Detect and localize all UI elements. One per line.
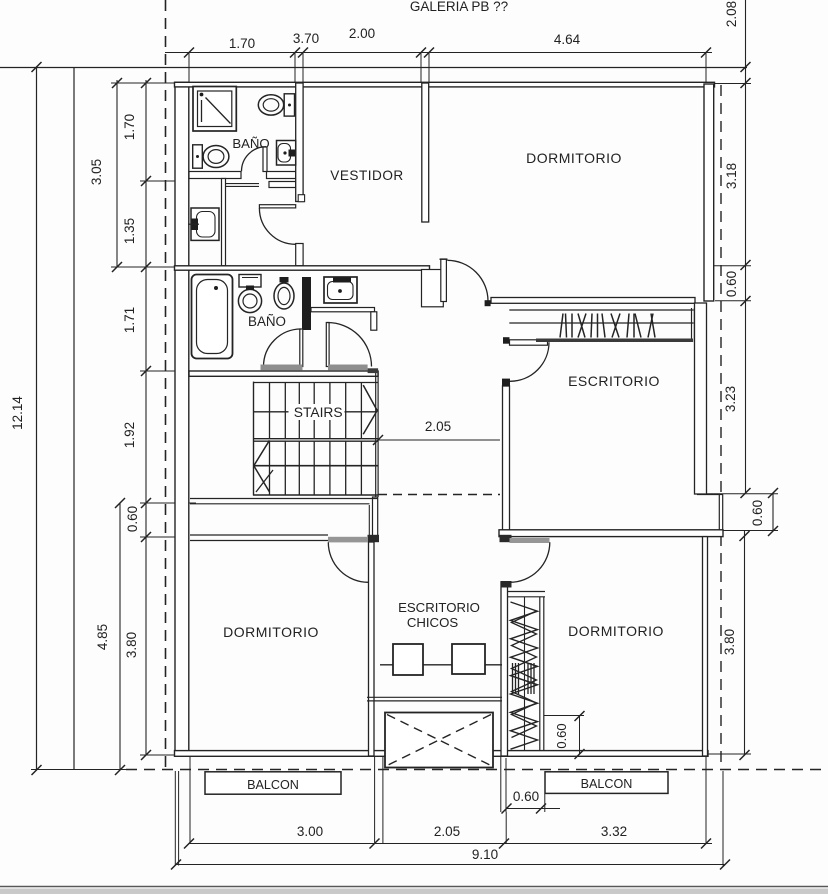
svg-text:ESCRITORIO: ESCRITORIO (568, 373, 660, 389)
svg-text:2.00: 2.00 (349, 26, 375, 41)
svg-text:2.05: 2.05 (425, 419, 451, 434)
svg-text:1.92: 1.92 (122, 422, 137, 448)
svg-text:0.60: 0.60 (513, 789, 539, 804)
svg-text:STAIRS: STAIRS (294, 405, 343, 420)
svg-text:3.70: 3.70 (293, 31, 319, 46)
svg-text:1.35: 1.35 (122, 218, 137, 244)
svg-text:0.60: 0.60 (724, 271, 739, 297)
svg-text:1.70: 1.70 (229, 36, 255, 51)
svg-text:3.32: 3.32 (601, 824, 627, 839)
svg-text:9.10: 9.10 (472, 847, 498, 862)
svg-text:VESTIDOR: VESTIDOR (330, 168, 404, 183)
svg-text:1.70: 1.70 (122, 114, 137, 140)
svg-text:BAÑO: BAÑO (248, 314, 286, 329)
svg-text:BALCON: BALCON (247, 778, 299, 792)
svg-text:GALERIA PB ??: GALERIA PB ?? (410, 0, 508, 14)
svg-text:ESCRITORIO: ESCRITORIO (398, 600, 480, 615)
svg-text:0.60: 0.60 (554, 723, 569, 748)
svg-text:4.85: 4.85 (95, 624, 110, 650)
svg-text:4.64: 4.64 (554, 32, 581, 47)
svg-text:2.08: 2.08 (724, 1, 739, 27)
svg-text:3.80: 3.80 (124, 632, 139, 658)
svg-text:3.00: 3.00 (297, 824, 323, 839)
svg-text:3.18: 3.18 (724, 163, 739, 189)
svg-text:12.14: 12.14 (10, 396, 25, 430)
svg-text:3.05: 3.05 (89, 159, 104, 185)
svg-text:CHICOS: CHICOS (407, 615, 458, 630)
svg-text:3.80: 3.80 (722, 629, 737, 655)
svg-text:0.60: 0.60 (125, 506, 140, 532)
svg-text:3.23: 3.23 (723, 386, 738, 412)
svg-text:1.71: 1.71 (122, 307, 137, 333)
svg-text:DORMITORIO: DORMITORIO (568, 623, 664, 639)
svg-text:0.60: 0.60 (750, 500, 765, 526)
svg-text:DORMITORIO: DORMITORIO (526, 150, 622, 166)
svg-text:2.05: 2.05 (434, 824, 460, 839)
svg-text:DORMITORIO: DORMITORIO (223, 624, 319, 640)
svg-text:BALCON: BALCON (581, 777, 633, 791)
